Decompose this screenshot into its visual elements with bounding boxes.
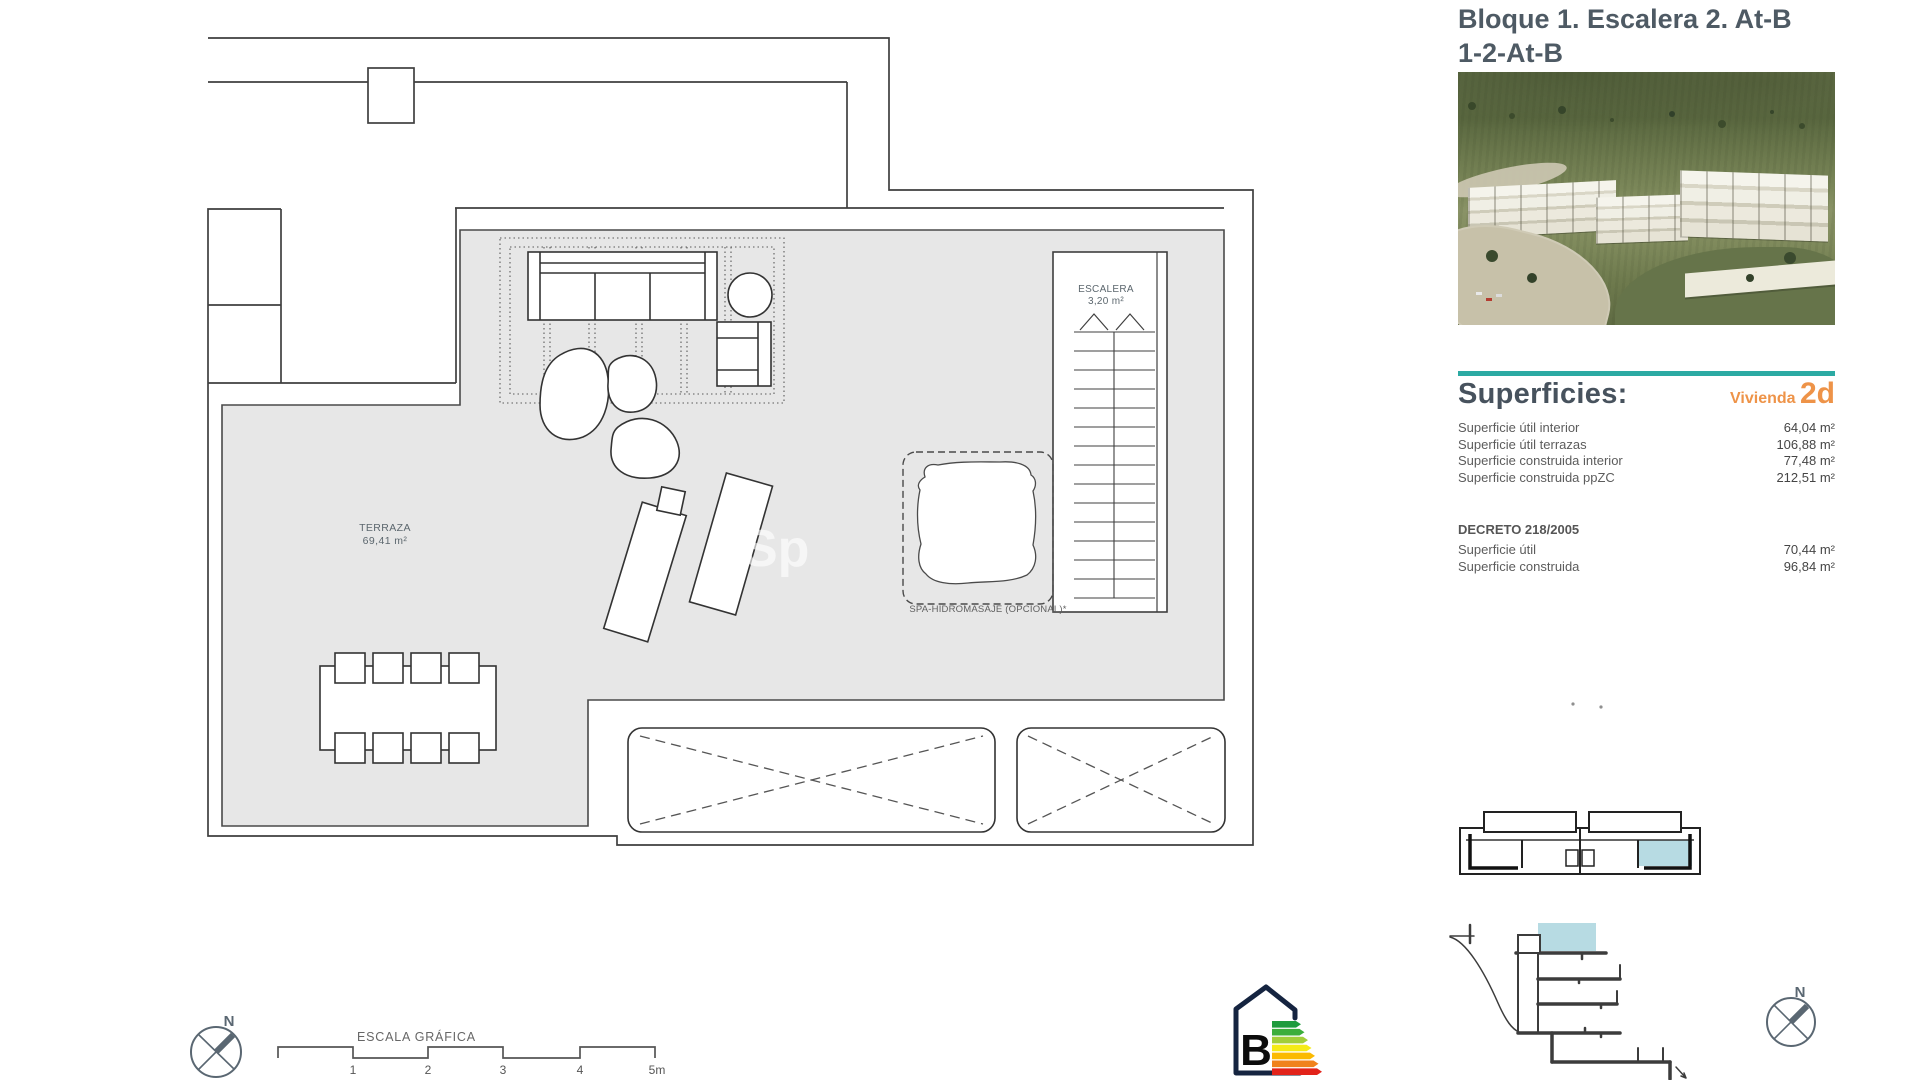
surface-row-value: 106,88 m² (1776, 437, 1835, 454)
terraza-area: 69,41 m² (363, 535, 408, 547)
escalera-area: 3,20 m² (1088, 296, 1124, 307)
energy-bar-d (1272, 1045, 1312, 1052)
photo-cars (1476, 292, 1482, 295)
photo-trees (1468, 102, 1476, 110)
sheet-title: Bloque 1. Escalera 2. At-B 1-2-At-B (1458, 2, 1848, 70)
section-diagram (1450, 923, 1686, 1079)
escalera-label: ESCALERA (1078, 284, 1134, 295)
spa-label: SPA-HIDROMASAJE (OPCIONAL)* (909, 604, 1066, 615)
scale-tick-1: 1 (350, 1063, 357, 1077)
skylight-box-right (1017, 728, 1225, 832)
surface-row-label: Superficie útil interior (1458, 420, 1579, 437)
superficies-panel: Superficies: Vivienda 2d Superficie útil… (1458, 377, 1835, 575)
skylight-box-left (628, 728, 995, 832)
key-plan-diagram (1460, 812, 1700, 874)
building-render-photo (1458, 72, 1835, 325)
scale-bar: ESCALA GRÁFICA 1 2 3 4 5m (278, 1029, 665, 1077)
stray-dot (1599, 705, 1602, 708)
north-label: N (1795, 984, 1806, 1001)
energy-bar-b (1272, 1029, 1305, 1036)
chimney-box (368, 68, 414, 123)
decreto-heading: DECRETO 218/2005 (1458, 522, 1835, 538)
surface-row-label: Superficie construida (1458, 559, 1579, 576)
surface-row-value: 212,51 m² (1776, 470, 1835, 487)
north-label: N (224, 1013, 235, 1030)
sheet-title-line2: 1-2-At-B (1458, 36, 1848, 70)
photo-building-middle (1596, 194, 1688, 243)
floorplan-sheet: { "header": { "title_line1": "Bloque 1. … (0, 0, 1920, 1080)
highlighted-floor (1538, 923, 1596, 951)
surface-row: Superficie construida ppZC 212,51 m² (1458, 470, 1835, 487)
stairs: ESCALERA 3,20 m² (1053, 252, 1167, 612)
surface-row-label: Superficie útil terrazas (1458, 437, 1587, 454)
sheet-title-line1: Bloque 1. Escalera 2. At-B (1458, 2, 1848, 36)
lounger-side-table (657, 487, 685, 515)
decreto-rows: Superficie útil 70,44 m² Superficie cons… (1458, 542, 1835, 575)
scale-tick-4: 4 (577, 1063, 584, 1077)
surface-row-label: Superficie construida interior (1458, 453, 1623, 470)
superficies-heading: Superficies: (1458, 378, 1628, 411)
section-arrow (1676, 1067, 1686, 1078)
stray-dot (1571, 702, 1574, 705)
teal-divider (1458, 371, 1835, 376)
energy-bar-a (1272, 1021, 1301, 1028)
unit-badge: Vivienda 2d (1730, 377, 1835, 411)
round-side-table (728, 273, 772, 317)
unit-code: 2d (1800, 377, 1835, 410)
scale-tick-5m: 5m (649, 1063, 666, 1077)
energy-rating-icon: B (1236, 987, 1322, 1075)
energy-bar-e (1272, 1053, 1315, 1060)
terrain-line (1450, 937, 1519, 1032)
scale-tick-3: 3 (500, 1063, 507, 1077)
sofa (528, 252, 717, 320)
surface-row-value: 77,48 m² (1784, 453, 1835, 470)
energy-bar-c (1272, 1037, 1308, 1044)
scale-bar-title: ESCALA GRÁFICA (357, 1029, 476, 1044)
dining-set (320, 653, 496, 763)
surface-rows: Superficie útil interior 64,04 m² Superf… (1458, 420, 1835, 486)
photo-building-right (1680, 170, 1828, 241)
energy-bar-g (1272, 1068, 1322, 1075)
surface-row-value: 70,44 m² (1784, 542, 1835, 559)
surface-row: Superficie construida 96,84 m² (1458, 559, 1835, 576)
unit-label: Vivienda (1730, 390, 1796, 407)
energy-rating-letter: B (1240, 1026, 1272, 1075)
surface-row-value: 96,84 m² (1784, 559, 1835, 576)
north-arrow-icon-right: N (1767, 984, 1815, 1046)
highlighted-unit (1638, 840, 1692, 866)
watermark: Sp (743, 520, 809, 578)
surface-row-value: 64,04 m² (1784, 420, 1835, 437)
surface-row: Superficie construida interior 77,48 m² (1458, 453, 1835, 470)
north-arrow-icon: N (191, 1013, 241, 1077)
scale-tick-2: 2 (425, 1063, 432, 1077)
energy-bar-f (1272, 1061, 1319, 1068)
surface-row: Superficie útil interior 64,04 m² (1458, 420, 1835, 437)
surface-row: Superficie útil 70,44 m² (1458, 542, 1835, 559)
surface-row: Superficie útil terrazas 106,88 m² (1458, 437, 1835, 454)
surface-row-label: Superficie útil (1458, 542, 1536, 559)
lounge-chair-unit (717, 322, 771, 386)
surface-row-label: Superficie construida ppZC (1458, 470, 1615, 487)
terraza-label: TERRAZA (359, 522, 411, 534)
